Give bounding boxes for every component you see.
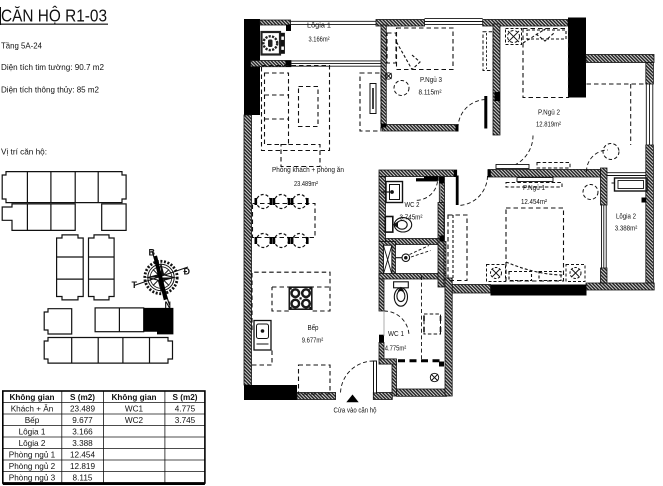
svg-text:Diện tích tim tường: 90.7 m2: Diện tích tim tường: 90.7 m2: [1, 62, 104, 72]
svg-text:3.745m²: 3.745m²: [400, 215, 424, 222]
svg-text:4.775m²: 4.775m²: [385, 346, 407, 353]
svg-text:Bếp: Bếp: [308, 323, 319, 332]
svg-text:4.775: 4.775: [175, 405, 196, 414]
svg-text:12.454m²: 12.454m²: [521, 199, 548, 206]
svg-text:12.819m²: 12.819m²: [536, 122, 562, 129]
svg-text:23.489m²: 23.489m²: [294, 181, 319, 188]
svg-text:Lôgia 1: Lôgia 1: [307, 23, 331, 30]
svg-text:N: N: [165, 300, 172, 310]
svg-text:Khách + Ăn: Khách + Ăn: [11, 404, 54, 414]
svg-text:Phòng ngủ 2: Phòng ngủ 2: [9, 462, 56, 471]
svg-text:23.489: 23.489: [70, 405, 95, 414]
svg-text:9.677: 9.677: [72, 416, 93, 425]
svg-text:3.388: 3.388: [72, 439, 93, 448]
svg-text:P.Ngủ 2: P.Ngủ 2: [538, 109, 560, 117]
svg-text:Lôgia 1: Lôgia 1: [19, 428, 46, 437]
svg-text:Phòng ngủ 3: Phòng ngủ 3: [9, 474, 56, 483]
svg-text:Tầng 5A-24: Tầng 5A-24: [1, 40, 42, 50]
svg-text:P.Ngủ 1: P.Ngủ 1: [523, 184, 545, 192]
svg-text:9.677m²: 9.677m²: [302, 338, 324, 345]
svg-text:3.388m²: 3.388m²: [615, 226, 638, 233]
svg-text:3.745: 3.745: [175, 416, 196, 425]
svg-text:12.819: 12.819: [70, 462, 95, 471]
svg-text:WC2: WC2: [125, 416, 144, 425]
svg-text:8.115m²: 8.115m²: [419, 90, 443, 97]
svg-text:CĂN HỘ R1-03: CĂN HỘ R1-03: [1, 5, 107, 26]
svg-text:WC 1: WC 1: [388, 331, 404, 338]
svg-text:P.Ngủ 3: P.Ngủ 3: [420, 76, 442, 84]
svg-text:Lôgia 2: Lôgia 2: [19, 439, 46, 448]
svg-text:Lôgia 2: Lôgia 2: [616, 214, 636, 221]
svg-text:3.166m²: 3.166m²: [309, 37, 331, 44]
svg-text:3.166: 3.166: [72, 428, 93, 437]
svg-text:Phòng ngủ 1: Phòng ngủ 1: [9, 451, 56, 460]
svg-text:Phòng khách + phòng ăn: Phòng khách + phòng ăn: [272, 167, 344, 174]
svg-text:WC 2: WC 2: [405, 202, 420, 209]
svg-text:S (m2): S (m2): [70, 393, 95, 402]
svg-text:8.115: 8.115: [73, 474, 93, 483]
svg-text:S (m2): S (m2): [172, 393, 197, 402]
svg-text:Vị trí căn hộ:: Vị trí căn hộ:: [1, 146, 47, 156]
svg-text:12.454: 12.454: [70, 451, 95, 460]
svg-text:Cửa vào căn hộ: Cửa vào căn hộ: [334, 407, 377, 415]
svg-text:WC1: WC1: [125, 405, 144, 414]
svg-text:T: T: [132, 280, 138, 290]
svg-text:B: B: [149, 248, 156, 258]
svg-text:Đ: Đ: [184, 267, 191, 277]
svg-text:Bếp: Bếp: [25, 416, 40, 425]
svg-text:Diện tích thông thủy: 85 m2: Diện tích thông thủy: 85 m2: [1, 85, 99, 95]
svg-text:Không gian: Không gian: [111, 393, 156, 402]
svg-text:Không gian: Không gian: [9, 393, 54, 402]
